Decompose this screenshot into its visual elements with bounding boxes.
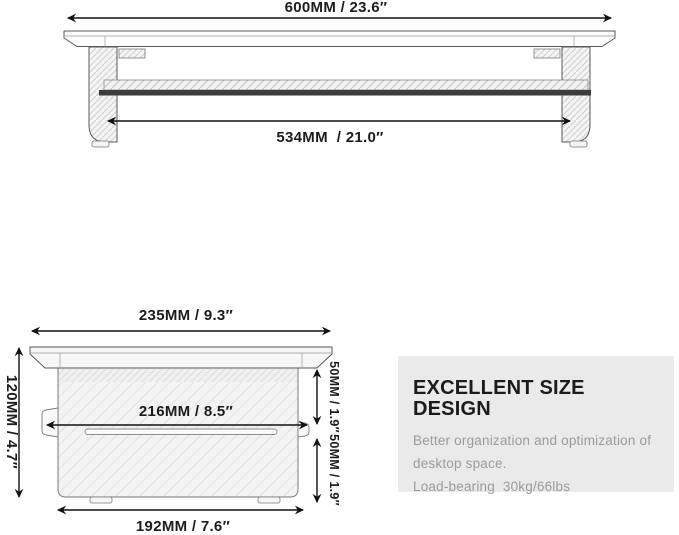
side-body (42, 368, 309, 503)
side-left-foot (90, 497, 112, 503)
dim-inner-width-label: 534MM / 21.0″ (276, 129, 383, 146)
front-left-leg (89, 47, 145, 147)
front-shelf (99, 80, 591, 96)
dim-side-mid-width-label: 216MM / 8.5″ (139, 403, 233, 420)
dim-side-lower-gap: 50MM / 1.9″ (317, 434, 341, 506)
info-box-line-2: desktop space. (413, 452, 664, 475)
product-dimension-image: 600MM / 23.6″ 534MM / 21.0″ (0, 0, 679, 535)
info-box-line-1: Better organization and optimization of (413, 429, 664, 452)
info-box-body: Better organization and optimization of … (413, 429, 664, 498)
dim-side-height: 120MM / 4.7″ (3, 348, 20, 497)
dim-side-lower-gap-label: 50MM / 1.9″ (327, 434, 341, 506)
front-right-foot (570, 141, 587, 147)
front-right-bracket (534, 49, 560, 58)
dim-side-upper-gap: 50MM / 1.9″ (317, 361, 341, 433)
dim-side-upper-gap-label: 50MM / 1.9″ (327, 361, 341, 433)
dim-total-width-label: 600MM / 23.6″ (285, 0, 388, 16)
dim-inner-width: 534MM / 21.0″ (108, 121, 570, 146)
front-view-diagram: 600MM / 23.6″ 534MM / 21.0″ (0, 0, 679, 170)
dim-side-bottom-width-label: 192MM / 7.6″ (136, 518, 230, 535)
dim-side-bottom-width: 192MM / 7.6″ (58, 510, 303, 535)
side-body-top-band (59, 369, 297, 382)
side-tabletop (30, 347, 332, 368)
size-design-info-box: EXCELLENT SIZE DESIGN Better organizatio… (398, 356, 674, 492)
front-tabletop (64, 31, 615, 47)
front-dark-crossbar (99, 90, 591, 96)
info-box-title: EXCELLENT SIZE DESIGN (413, 378, 664, 420)
dim-total-width: 600MM / 23.6″ (68, 0, 611, 18)
side-left-hook (42, 408, 58, 437)
side-slot (85, 429, 277, 435)
dim-side-top-width-label: 235MM / 9.3″ (139, 307, 233, 324)
front-left-foot (92, 141, 109, 147)
front-right-leg (534, 47, 590, 147)
dim-side-top-width: 235MM / 9.3″ (32, 307, 330, 331)
front-left-bracket (119, 49, 145, 58)
side-view-diagram: 235MM / 9.3″ 120MM / 4.7″ 216MM / (0, 300, 360, 535)
info-box-line-3: Load-bearing 30kg/66lbs (413, 475, 664, 498)
dim-side-height-label: 120MM / 4.7″ (3, 375, 20, 469)
side-right-notch (298, 422, 309, 437)
side-right-foot (258, 497, 280, 503)
